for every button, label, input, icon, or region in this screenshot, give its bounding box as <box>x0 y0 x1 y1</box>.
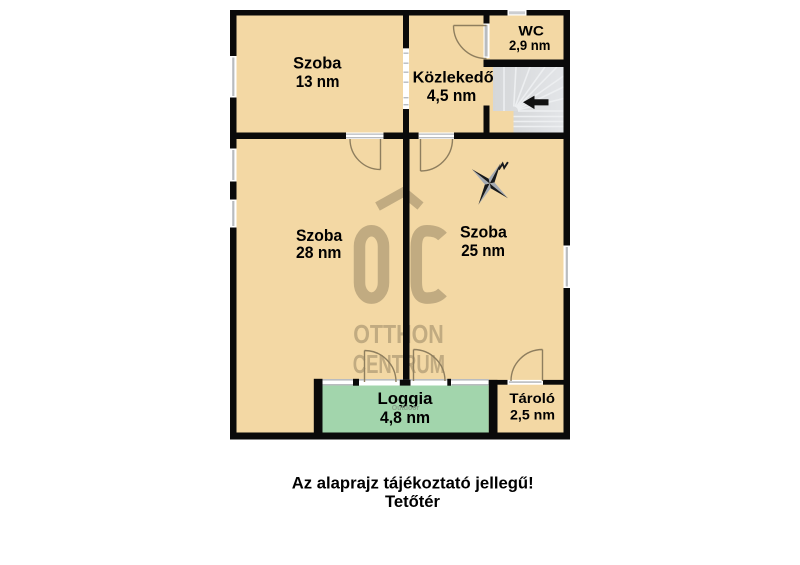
svg-text:Tároló: Tároló <box>509 391 555 406</box>
svg-text:Szoba: Szoba <box>293 54 342 73</box>
svg-text:Szoba: Szoba <box>460 223 507 242</box>
svg-text:4,8 nm: 4,8 nm <box>380 409 430 427</box>
svg-text:2,5 nm: 2,5 nm <box>510 408 555 423</box>
svg-text:Az alaprajz tájékoztató jelleg: Az alaprajz tájékoztató jellegű! <box>292 473 534 492</box>
svg-text:WC: WC <box>518 24 544 39</box>
svg-text:Tetőtér: Tetőtér <box>385 492 440 511</box>
svg-text:OTTHON: OTTHON <box>353 321 444 349</box>
svg-text:13 nm: 13 nm <box>296 72 340 91</box>
svg-text:2,9 nm: 2,9 nm <box>509 38 551 53</box>
svg-text:28 nm: 28 nm <box>296 243 342 262</box>
svg-text:Szoba: Szoba <box>296 226 343 245</box>
svg-text:4,5 nm: 4,5 nm <box>427 87 476 105</box>
svg-text:25 nm: 25 nm <box>461 241 505 260</box>
svg-text:Közlekedő: Közlekedő <box>413 70 494 87</box>
